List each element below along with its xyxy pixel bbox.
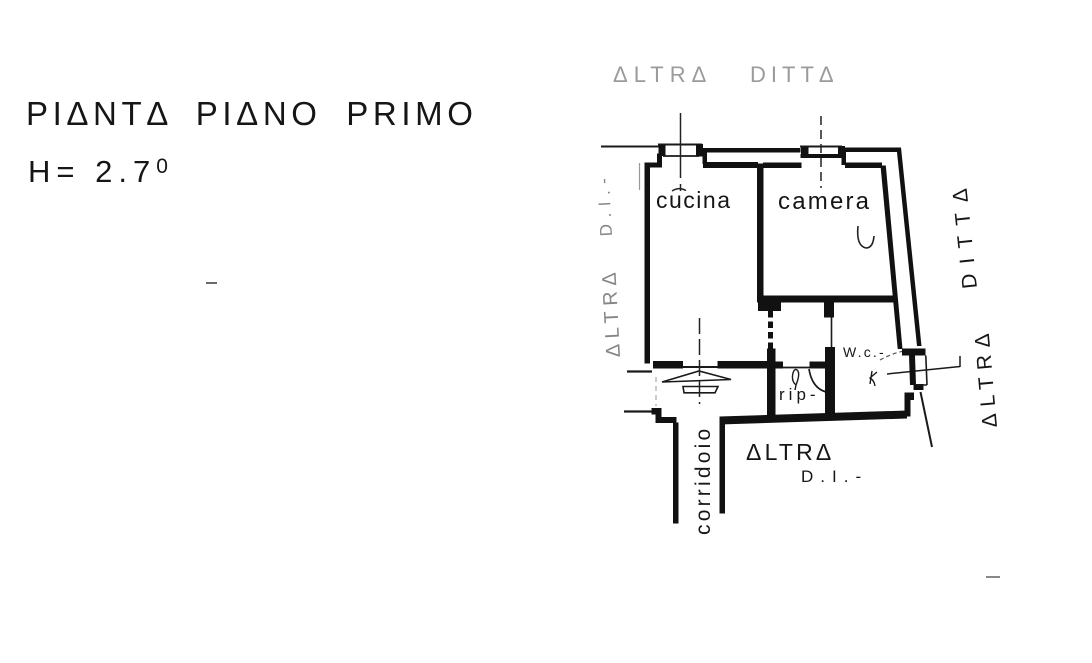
svg-text:cucina: cucina	[656, 187, 731, 213]
svg-text:ΔLTRΔ: ΔLTRΔ	[746, 439, 834, 465]
svg-text:ΔLTRΔ: ΔLTRΔ	[598, 266, 625, 358]
svg-text:H= 2.70: H= 2.70	[28, 154, 174, 189]
svg-text:DITTΔ: DITTΔ	[948, 177, 982, 289]
svg-text:PIΔNTΔ PIΔNO PRIMO: PIΔNTΔ PIΔNO PRIMO	[26, 95, 477, 132]
svg-text:corridoio: corridoio	[692, 426, 715, 535]
svg-text:D.I.-: D.I.-	[594, 171, 616, 237]
svg-text:camera: camera	[778, 188, 871, 215]
svg-text:DITTΔ: DITTΔ	[750, 62, 839, 87]
svg-text:rip-: rip-	[779, 385, 820, 404]
svg-text:ΔLTRΔ: ΔLTRΔ	[970, 326, 1002, 429]
svg-text:ΔLTRΔ: ΔLTRΔ	[613, 62, 712, 87]
svg-text:W.c.-: W.c.-	[843, 344, 886, 360]
svg-text:D.I.-: D.I.-	[801, 467, 868, 486]
